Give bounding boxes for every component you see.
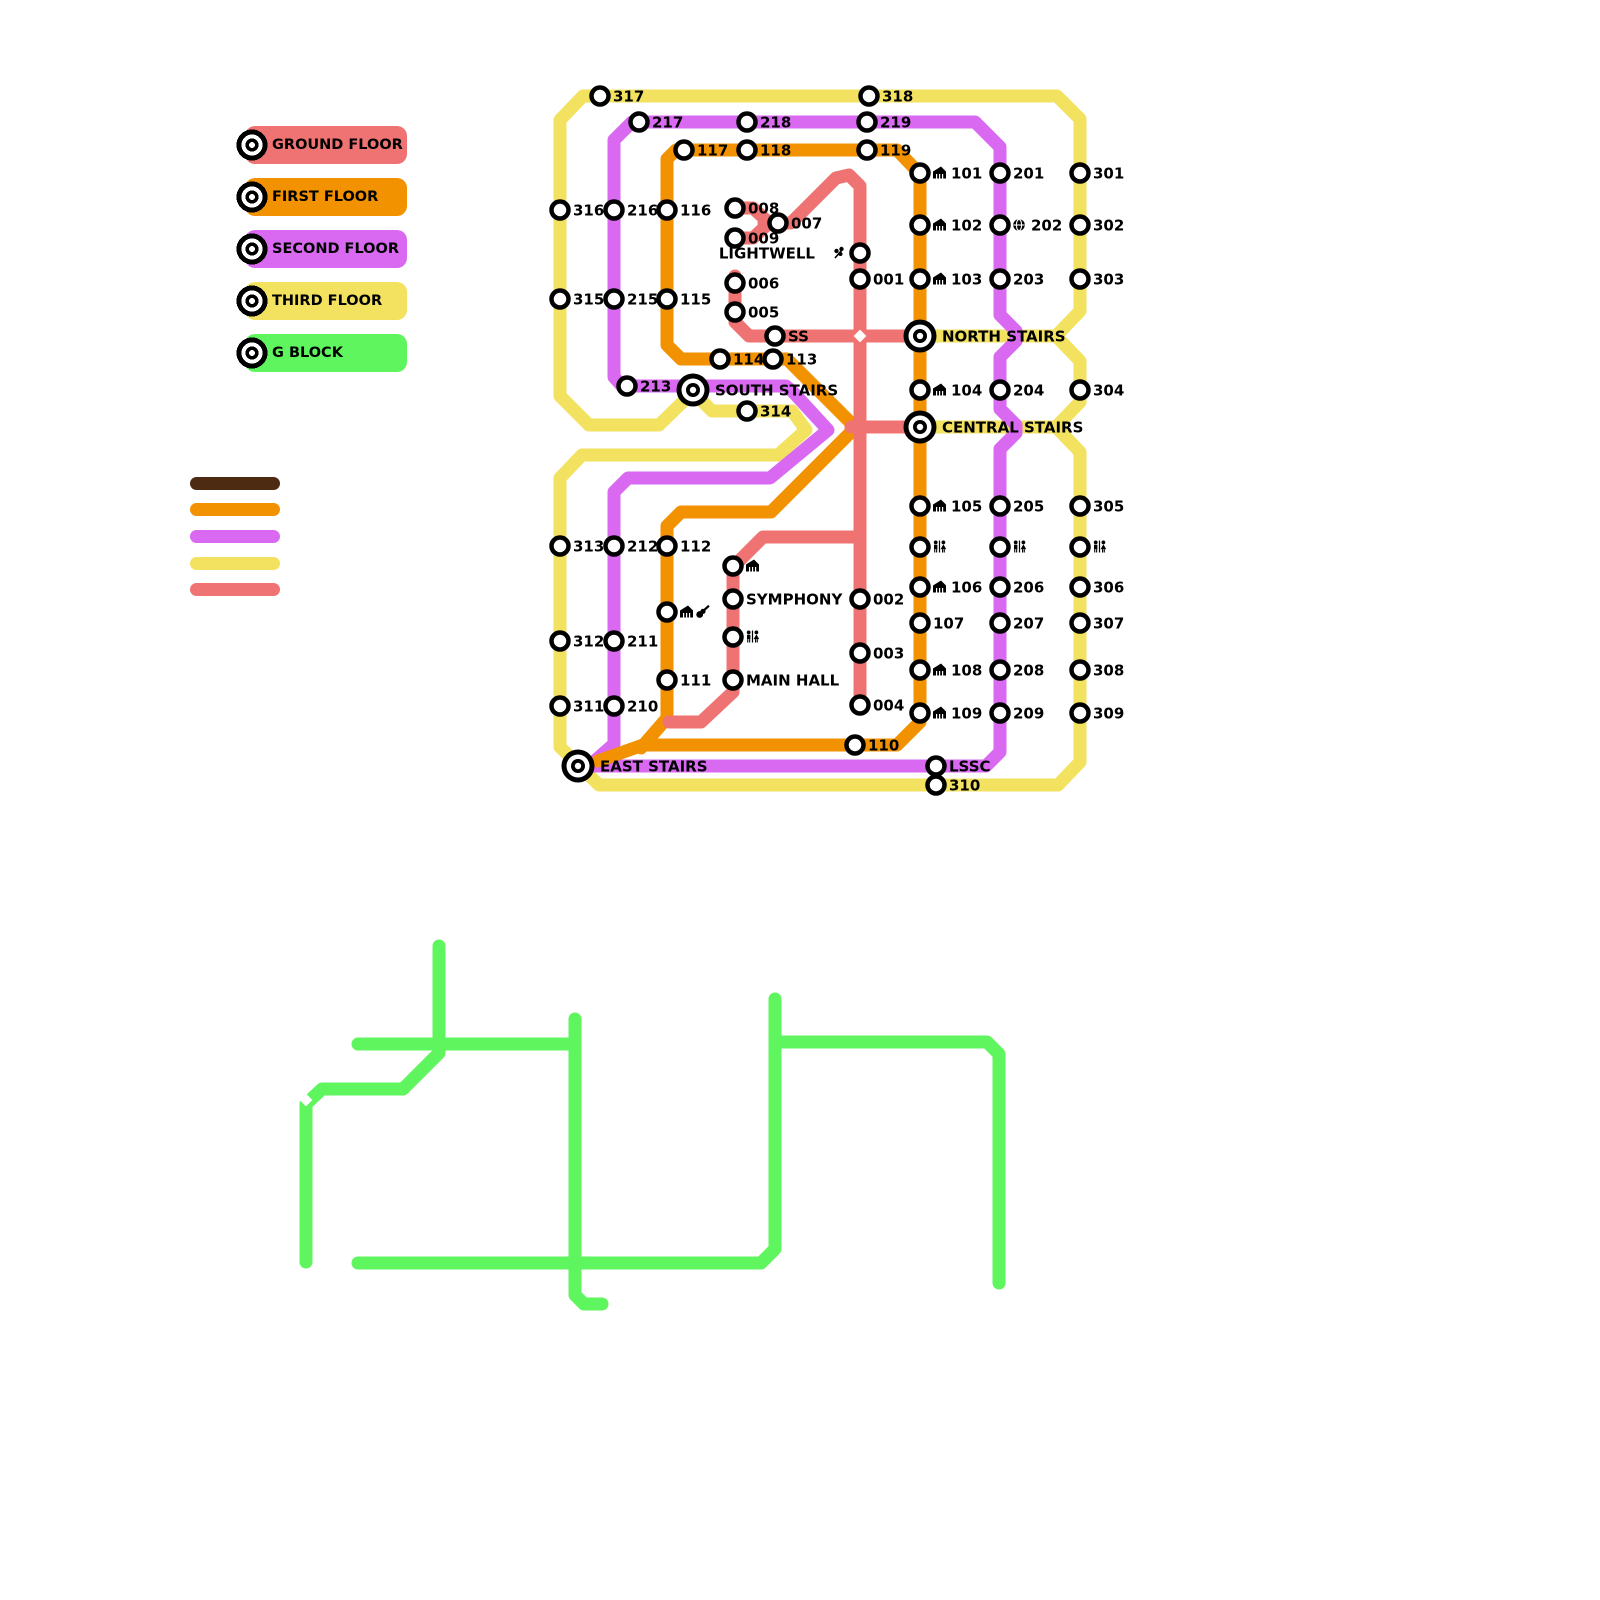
station-piano-guitar-667-612 bbox=[659, 604, 676, 621]
station-002: 002 bbox=[852, 591, 905, 609]
station-318: 318 bbox=[861, 88, 914, 106]
station-label-311: 311 bbox=[573, 698, 604, 716]
station-101: 101 bbox=[912, 165, 983, 183]
station-label-204: 204 bbox=[1013, 382, 1044, 400]
globe-icon bbox=[1013, 219, 1025, 231]
station-label-313: 313 bbox=[573, 538, 604, 556]
piano-icon bbox=[680, 606, 693, 618]
station-main-hall: MAIN HALL bbox=[725, 672, 840, 690]
piano-icon bbox=[933, 167, 946, 179]
station-211: 211 bbox=[606, 633, 659, 651]
station-205: 205 bbox=[992, 498, 1045, 516]
station-216: 216 bbox=[606, 202, 659, 220]
station-label-106: 106 bbox=[951, 579, 982, 597]
station-label-318: 318 bbox=[882, 88, 913, 106]
station-label-007: 007 bbox=[791, 215, 822, 233]
station-label-110: 110 bbox=[868, 737, 899, 755]
station-119: 119 bbox=[859, 142, 912, 160]
station-label-206: 206 bbox=[1013, 579, 1044, 597]
station-303: 303 bbox=[1072, 271, 1125, 289]
station-114: 114 bbox=[712, 351, 765, 369]
station-label-ss: SS bbox=[788, 328, 809, 346]
line-ground-floor-hall-loop bbox=[669, 537, 860, 722]
building-metro-map-page: GROUND FLOOR FIRST FLOOR SECOND FLOOR TH… bbox=[0, 0, 1600, 1600]
station-218: 218 bbox=[739, 114, 792, 132]
station-label-004: 004 bbox=[873, 697, 904, 715]
station-label-312: 312 bbox=[573, 633, 604, 651]
station-label-215: 215 bbox=[627, 291, 658, 309]
station-207: 207 bbox=[992, 615, 1045, 633]
station-102: 102 bbox=[912, 217, 983, 235]
station-310: 310 bbox=[928, 777, 981, 795]
station-109: 109 bbox=[912, 705, 983, 723]
station-111: 111 bbox=[659, 672, 712, 690]
station-toilets-733-637 bbox=[725, 629, 742, 646]
station-label-216: 216 bbox=[627, 202, 658, 220]
station-004: 004 bbox=[852, 697, 905, 715]
station-label-symphony: SYMPHONY bbox=[746, 591, 843, 609]
station-213: 213 bbox=[619, 378, 672, 396]
station-label-central-stairs: CENTRAL STAIRS bbox=[942, 419, 1083, 437]
station-112: 112 bbox=[659, 538, 712, 556]
station-314: 314 bbox=[739, 403, 792, 421]
piano-icon bbox=[933, 219, 946, 231]
station-312: 312 bbox=[552, 633, 605, 651]
station-label-213: 213 bbox=[640, 378, 671, 396]
station-209: 209 bbox=[992, 705, 1045, 723]
station-label-116: 116 bbox=[680, 202, 711, 220]
station-lightwell: LIGHTWELL bbox=[719, 245, 869, 263]
line-g-block-1 bbox=[306, 946, 439, 1262]
station-label-307: 307 bbox=[1093, 615, 1124, 633]
station-label-115: 115 bbox=[680, 291, 711, 309]
piano-icon bbox=[933, 384, 946, 396]
station-label-lightwell: LIGHTWELL bbox=[719, 245, 816, 263]
station-label-108: 108 bbox=[951, 662, 982, 680]
station-107: 107 bbox=[912, 615, 965, 633]
station-label-105: 105 bbox=[951, 498, 982, 516]
station-212: 212 bbox=[606, 538, 659, 556]
station-label-south-stairs: SOUTH STAIRS bbox=[715, 382, 838, 400]
station-215: 215 bbox=[606, 291, 659, 309]
station-208: 208 bbox=[992, 662, 1045, 680]
station-117: 117 bbox=[676, 142, 729, 160]
station-label-210: 210 bbox=[627, 698, 658, 716]
station-label-109: 109 bbox=[951, 705, 982, 723]
station-label-201: 201 bbox=[1013, 165, 1044, 183]
station-315: 315 bbox=[552, 291, 605, 309]
station-label-112: 112 bbox=[680, 538, 711, 556]
station-104: 104 bbox=[912, 382, 983, 400]
station-label-316: 316 bbox=[573, 202, 604, 220]
station-ss: SS bbox=[767, 328, 809, 346]
station-label-309: 309 bbox=[1093, 705, 1124, 723]
station-307: 307 bbox=[1072, 615, 1125, 633]
station-203: 203 bbox=[992, 271, 1045, 289]
station-005: 005 bbox=[727, 304, 780, 322]
station-label-111: 111 bbox=[680, 672, 711, 690]
station-toilets-1000-547 bbox=[992, 539, 1009, 556]
station-central-stairs: CENTRAL STAIRS bbox=[904, 411, 1084, 444]
station-206: 206 bbox=[992, 579, 1045, 597]
station-label-218: 218 bbox=[760, 114, 791, 132]
toilets-icon bbox=[1014, 541, 1026, 553]
station-label-103: 103 bbox=[951, 271, 982, 289]
station-113: 113 bbox=[765, 351, 818, 369]
station-label-304: 304 bbox=[1093, 382, 1124, 400]
station-308: 308 bbox=[1072, 662, 1125, 680]
station-symphony: SYMPHONY bbox=[725, 591, 844, 609]
piano-icon bbox=[933, 664, 946, 676]
station-316: 316 bbox=[552, 202, 605, 220]
toilets-icon bbox=[1094, 541, 1106, 553]
station-label-north-stairs: NORTH STAIRS bbox=[942, 328, 1066, 346]
station-lssc: LSSC bbox=[928, 758, 991, 776]
station-label-209: 209 bbox=[1013, 705, 1044, 723]
station-label-lssc: LSSC bbox=[949, 758, 991, 776]
toilets-icon bbox=[934, 541, 946, 553]
station-label-005: 005 bbox=[748, 304, 779, 322]
station-label-305: 305 bbox=[1093, 498, 1124, 516]
station-label-101: 101 bbox=[951, 165, 982, 183]
building-metro-map: 3173183013023033043053063073083093103113… bbox=[0, 0, 1600, 1600]
station-label-203: 203 bbox=[1013, 271, 1044, 289]
station-toilets-1080-547 bbox=[1072, 539, 1089, 556]
station-label-107: 107 bbox=[933, 615, 964, 633]
station-202: 202 bbox=[992, 217, 1063, 235]
station-309: 309 bbox=[1072, 705, 1125, 723]
station-108: 108 bbox=[912, 662, 983, 680]
station-006: 006 bbox=[727, 275, 780, 293]
station-201: 201 bbox=[992, 165, 1045, 183]
station-label-306: 306 bbox=[1093, 579, 1124, 597]
station-label-001: 001 bbox=[873, 271, 904, 289]
station-label-104: 104 bbox=[951, 382, 982, 400]
piano-icon bbox=[933, 581, 946, 593]
station-label-314: 314 bbox=[760, 403, 791, 421]
station-204: 204 bbox=[992, 382, 1045, 400]
line-g-block-5 bbox=[775, 1042, 999, 1283]
station-label-118: 118 bbox=[760, 142, 791, 160]
station-301: 301 bbox=[1072, 165, 1125, 183]
station-label-303: 303 bbox=[1093, 271, 1124, 289]
station-311: 311 bbox=[552, 698, 605, 716]
station-toilets-920-547 bbox=[912, 539, 929, 556]
station-317: 317 bbox=[592, 88, 645, 106]
station-302: 302 bbox=[1072, 217, 1125, 235]
station-label-east-stairs: EAST STAIRS bbox=[600, 758, 708, 776]
station-label-308: 308 bbox=[1093, 662, 1124, 680]
station-label-208: 208 bbox=[1013, 662, 1044, 680]
piano-icon bbox=[933, 707, 946, 719]
station-label-117: 117 bbox=[697, 142, 728, 160]
station-305: 305 bbox=[1072, 498, 1125, 516]
station-210: 210 bbox=[606, 698, 659, 716]
piano-icon bbox=[933, 500, 946, 512]
station-118: 118 bbox=[739, 142, 792, 160]
station-label-119: 119 bbox=[880, 142, 911, 160]
station-label-207: 207 bbox=[1013, 615, 1044, 633]
station-label-219: 219 bbox=[880, 114, 911, 132]
station-label-102: 102 bbox=[951, 217, 982, 235]
station-007: 007 bbox=[770, 215, 823, 233]
station-105: 105 bbox=[912, 498, 983, 516]
station-115: 115 bbox=[659, 291, 712, 309]
station-label-113: 113 bbox=[786, 351, 817, 369]
station-label-302: 302 bbox=[1093, 217, 1124, 235]
station-label-002: 002 bbox=[873, 591, 904, 609]
station-304: 304 bbox=[1072, 382, 1125, 400]
station-label-212: 212 bbox=[627, 538, 658, 556]
station-313: 313 bbox=[552, 538, 605, 556]
station-label-211: 211 bbox=[627, 633, 658, 651]
plant-icon bbox=[834, 247, 843, 258]
guitar-icon bbox=[696, 606, 709, 618]
piano-icon bbox=[933, 273, 946, 285]
station-103: 103 bbox=[912, 271, 983, 289]
toilets-icon bbox=[747, 631, 759, 643]
station-label-301: 301 bbox=[1093, 165, 1124, 183]
station-label-202: 202 bbox=[1031, 217, 1062, 235]
station-label-003: 003 bbox=[873, 645, 904, 663]
station-label-205: 205 bbox=[1013, 498, 1044, 516]
piano-icon bbox=[746, 560, 759, 572]
station-label-006: 006 bbox=[748, 275, 779, 293]
station-219: 219 bbox=[859, 114, 912, 132]
station-003: 003 bbox=[852, 645, 905, 663]
station-label-317: 317 bbox=[613, 88, 644, 106]
station-label-217: 217 bbox=[652, 114, 683, 132]
station-116: 116 bbox=[659, 202, 712, 220]
station-110: 110 bbox=[847, 737, 900, 755]
station-north-stairs: NORTH STAIRS bbox=[904, 320, 1066, 353]
station-piano-733-566 bbox=[725, 558, 742, 575]
station-label-310: 310 bbox=[949, 777, 980, 795]
station-001: 001 bbox=[852, 271, 905, 289]
station-label-315: 315 bbox=[573, 291, 604, 309]
station-label-main-hall: MAIN HALL bbox=[746, 672, 840, 690]
station-217: 217 bbox=[631, 114, 684, 132]
station-106: 106 bbox=[912, 579, 983, 597]
station-306: 306 bbox=[1072, 579, 1125, 597]
station-label-114: 114 bbox=[733, 351, 764, 369]
